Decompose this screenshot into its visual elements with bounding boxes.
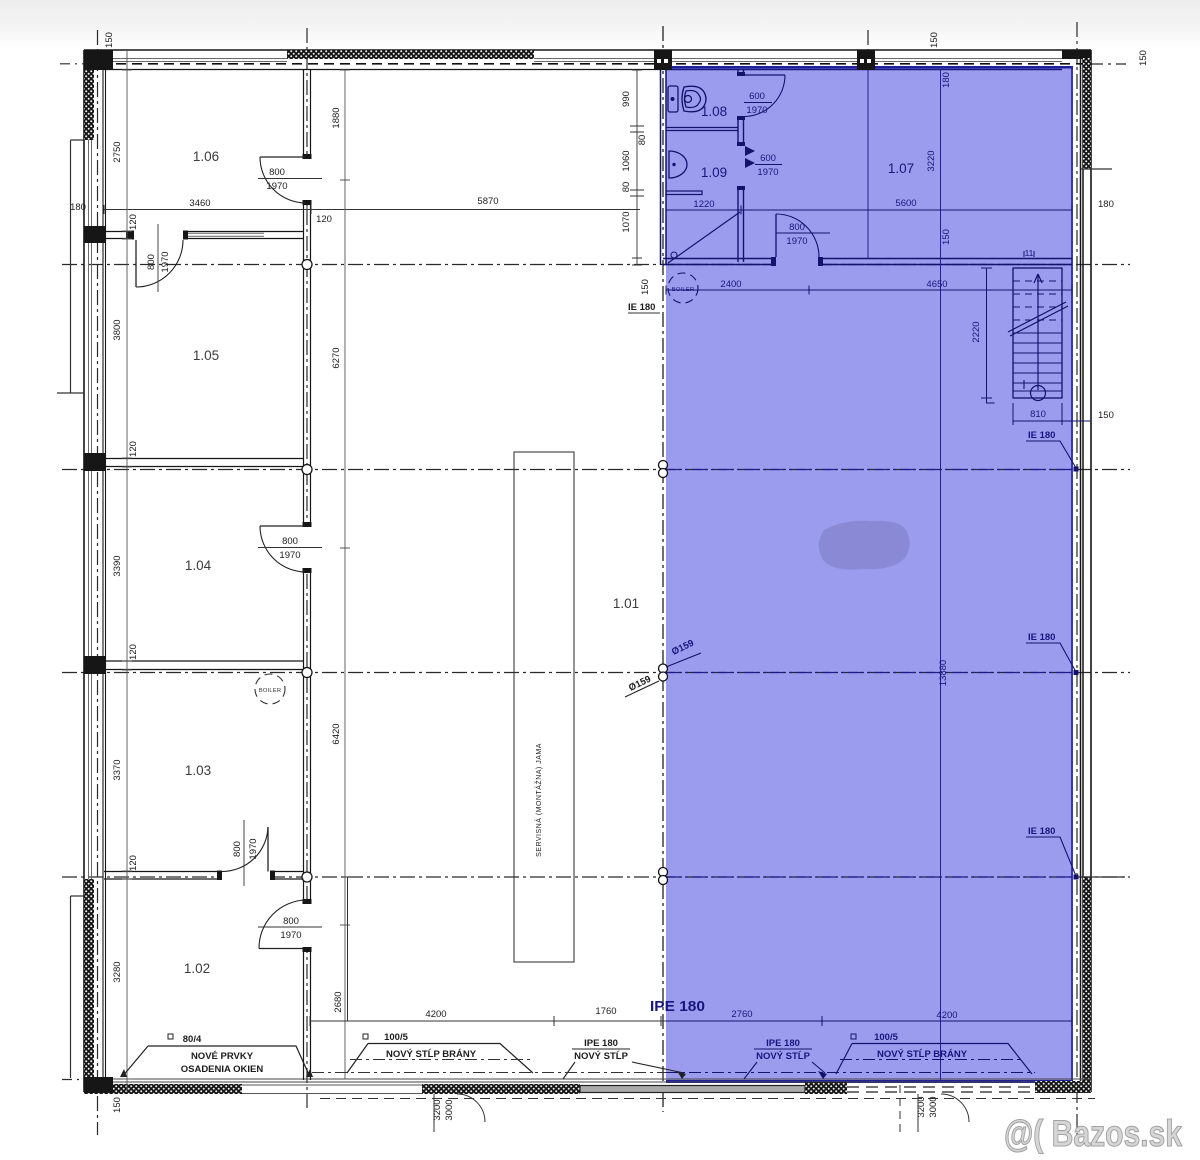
svg-text:IE 180: IE 180	[1028, 632, 1055, 643]
svg-text:1.08: 1.08	[701, 104, 727, 119]
svg-text:1970: 1970	[746, 105, 767, 116]
svg-text:600: 600	[760, 153, 776, 164]
svg-text:2220: 2220	[971, 321, 982, 342]
svg-text:3800: 3800	[112, 319, 123, 340]
svg-text:80: 80	[621, 182, 632, 193]
svg-text:600: 600	[749, 91, 765, 102]
svg-text:SERVISNÁ (MONTÁŽNA) JAMA: SERVISNÁ (MONTÁŽNA) JAMA	[534, 743, 543, 857]
svg-text:3280: 3280	[112, 961, 123, 982]
svg-text:990: 990	[621, 91, 632, 107]
svg-text:1.01: 1.01	[613, 596, 639, 611]
svg-text:1970: 1970	[280, 930, 301, 941]
svg-text:13880: 13880	[938, 660, 949, 686]
svg-text:4650: 4650	[926, 279, 947, 290]
svg-text:1760: 1760	[595, 1006, 616, 1017]
svg-text:3390: 3390	[112, 555, 123, 576]
svg-text:3220: 3220	[926, 150, 937, 171]
svg-text:800: 800	[232, 841, 243, 857]
svg-text:OSADENIA OKIEN: OSADENIA OKIEN	[181, 1064, 264, 1075]
svg-text:80/4: 80/4	[183, 1034, 202, 1045]
svg-text:120: 120	[128, 441, 139, 457]
svg-text:IE 180: IE 180	[628, 302, 655, 313]
svg-text:1.02: 1.02	[184, 961, 210, 976]
svg-text:4200: 4200	[936, 1010, 957, 1021]
svg-text:5600: 5600	[895, 198, 916, 209]
svg-text:100/5: 100/5	[874, 1032, 898, 1043]
svg-text:5870: 5870	[477, 196, 498, 207]
svg-text:1.05: 1.05	[193, 348, 219, 363]
svg-text:1970: 1970	[279, 550, 300, 561]
svg-text:NOVÝ STĹP: NOVÝ STĹP	[756, 1050, 811, 1062]
svg-text:1880: 1880	[331, 107, 342, 128]
svg-text:800: 800	[269, 167, 285, 178]
svg-text:6420: 6420	[331, 723, 342, 744]
svg-text:150: 150	[104, 32, 115, 48]
svg-text:6270: 6270	[331, 347, 342, 368]
svg-text:NOVÝ STĹP BRÁNY: NOVÝ STĹP BRÁNY	[877, 1048, 968, 1060]
svg-text:IE 180: IE 180	[1028, 826, 1055, 837]
svg-text:120: 120	[128, 644, 139, 660]
svg-text:1970: 1970	[757, 167, 778, 178]
svg-text:3460: 3460	[189, 198, 210, 209]
svg-text:1.03: 1.03	[185, 763, 211, 778]
svg-text:11: 11	[1025, 248, 1034, 258]
svg-text:2750: 2750	[112, 141, 123, 162]
svg-text:150: 150	[929, 32, 940, 48]
svg-text:IPE 180: IPE 180	[650, 999, 705, 1015]
svg-text:1970: 1970	[248, 838, 259, 859]
svg-text:1970: 1970	[266, 181, 287, 192]
svg-text:1970: 1970	[786, 236, 807, 247]
svg-text:1970: 1970	[160, 251, 171, 272]
svg-text:2760: 2760	[731, 1009, 752, 1020]
svg-text:NOVÝ STĹP BRÁNY: NOVÝ STĹP BRÁNY	[386, 1048, 477, 1060]
svg-text:120: 120	[128, 855, 139, 871]
svg-text:4200: 4200	[425, 1009, 446, 1020]
svg-text:2400: 2400	[720, 279, 741, 290]
svg-text:800: 800	[146, 254, 157, 270]
svg-text:2680: 2680	[333, 991, 344, 1012]
svg-text:3370: 3370	[112, 759, 123, 780]
svg-text:3000: 3000	[928, 1096, 939, 1117]
svg-text:150: 150	[1098, 410, 1114, 421]
svg-text:1060: 1060	[621, 150, 632, 171]
svg-text:800: 800	[282, 536, 298, 547]
svg-text:1070: 1070	[621, 211, 632, 232]
svg-text:120: 120	[316, 214, 332, 225]
svg-text:NOVÝ STĹP: NOVÝ STĹP	[574, 1050, 629, 1062]
svg-text:810: 810	[1030, 409, 1046, 420]
svg-text:NOVÉ PRVKY: NOVÉ PRVKY	[191, 1051, 254, 1062]
svg-text:150: 150	[112, 1097, 123, 1113]
svg-text:IPE 180: IPE 180	[584, 1038, 618, 1049]
svg-text:3000: 3000	[444, 1099, 455, 1120]
svg-text:150: 150	[941, 229, 952, 245]
svg-text:150: 150	[1138, 50, 1149, 66]
svg-text:IE 180: IE 180	[1028, 430, 1055, 441]
svg-text:BOILER: BOILER	[259, 688, 281, 694]
svg-text:1.07: 1.07	[888, 161, 914, 176]
svg-text:1220: 1220	[693, 199, 714, 210]
svg-text:180: 180	[941, 72, 952, 88]
svg-text:800: 800	[789, 222, 805, 233]
svg-text:150: 150	[640, 279, 651, 295]
svg-text:1.09: 1.09	[701, 165, 727, 180]
svg-text:800: 800	[283, 916, 299, 927]
svg-text:80: 80	[637, 135, 648, 146]
svg-text:120: 120	[128, 214, 139, 230]
svg-text:1.06: 1.06	[193, 149, 219, 164]
svg-text:1.04: 1.04	[185, 558, 212, 573]
svg-text:100/5: 100/5	[384, 1032, 408, 1043]
svg-text:@( Bazos.sk: @( Bazos.sk	[1004, 1113, 1182, 1154]
svg-text:180: 180	[1098, 199, 1114, 210]
svg-text:180: 180	[70, 202, 86, 213]
svg-text:IPE 180: IPE 180	[766, 1038, 800, 1049]
